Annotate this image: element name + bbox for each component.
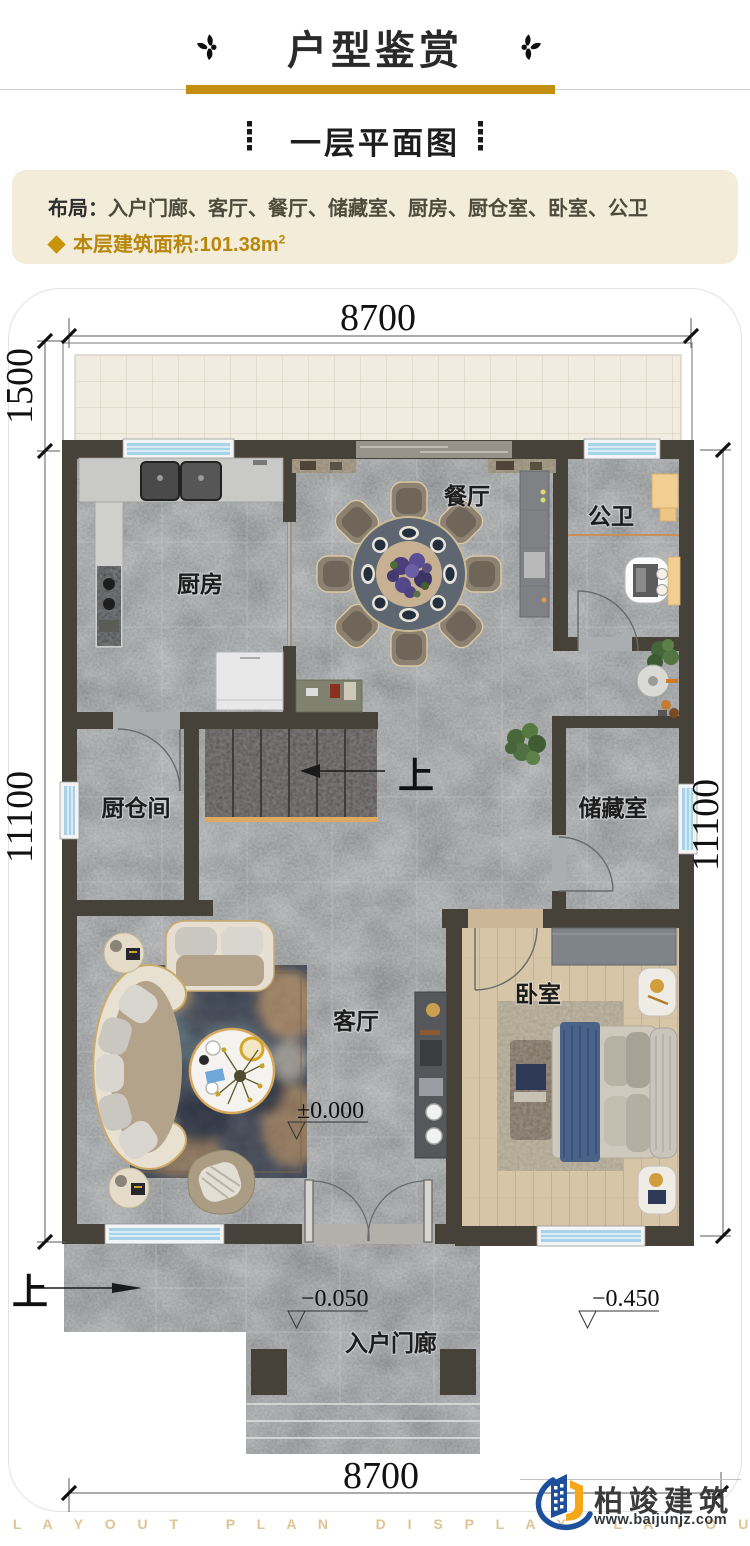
- svg-text:入户门廊: 入户门廊: [345, 1330, 437, 1356]
- svg-text:8700: 8700: [343, 1455, 419, 1497]
- svg-text:8700: 8700: [340, 297, 416, 339]
- svg-text:厨房: 厨房: [177, 571, 223, 597]
- svg-text:1500: 1500: [0, 348, 41, 424]
- svg-text:卧室: 卧室: [515, 981, 561, 1007]
- svg-text:−0.050: −0.050: [301, 1286, 369, 1312]
- svg-text:储藏室: 储藏室: [579, 795, 648, 821]
- svg-text:公卫: 公卫: [588, 503, 634, 529]
- svg-text:上: 上: [12, 1272, 48, 1312]
- svg-text:餐厅: 餐厅: [444, 483, 490, 509]
- svg-text:±0.000: ±0.000: [297, 1098, 364, 1124]
- svg-text:客厅: 客厅: [333, 1008, 379, 1034]
- svg-text:厨仓间: 厨仓间: [102, 795, 171, 821]
- svg-text:上: 上: [398, 756, 434, 796]
- svg-text:−0.450: −0.450: [592, 1286, 660, 1312]
- svg-text:11100: 11100: [685, 779, 727, 871]
- svg-text:11100: 11100: [0, 771, 41, 863]
